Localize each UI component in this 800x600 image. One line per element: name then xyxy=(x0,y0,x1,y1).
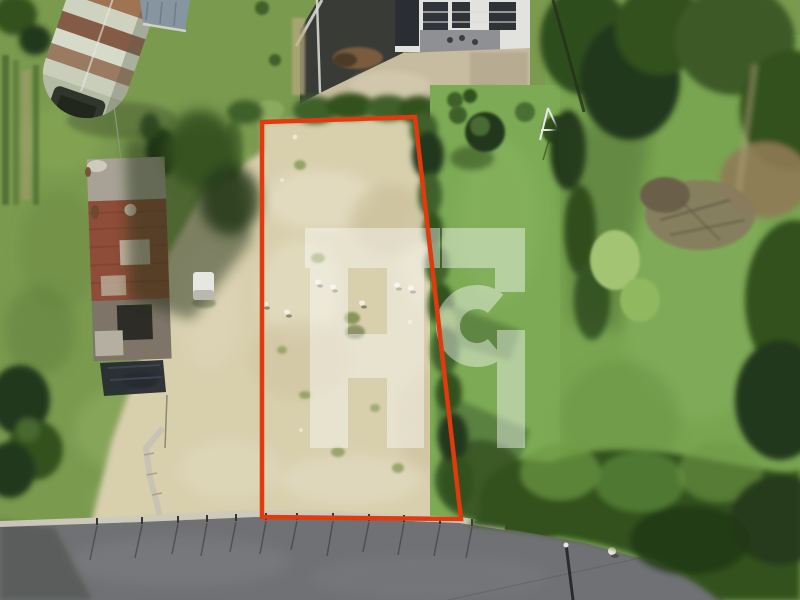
white-trailer xyxy=(192,272,216,308)
brown-animal xyxy=(91,205,99,219)
aerial-photo-canvas xyxy=(0,0,800,600)
aerial-drone-photo xyxy=(0,0,800,600)
roof-patch xyxy=(101,275,127,296)
window xyxy=(423,2,448,30)
modern-house xyxy=(395,0,530,52)
dark-debris-panels xyxy=(100,360,166,396)
window xyxy=(489,2,516,30)
terrace xyxy=(420,30,500,52)
brown-animal xyxy=(85,167,91,177)
house-roof-left xyxy=(395,0,419,46)
window xyxy=(452,2,470,28)
